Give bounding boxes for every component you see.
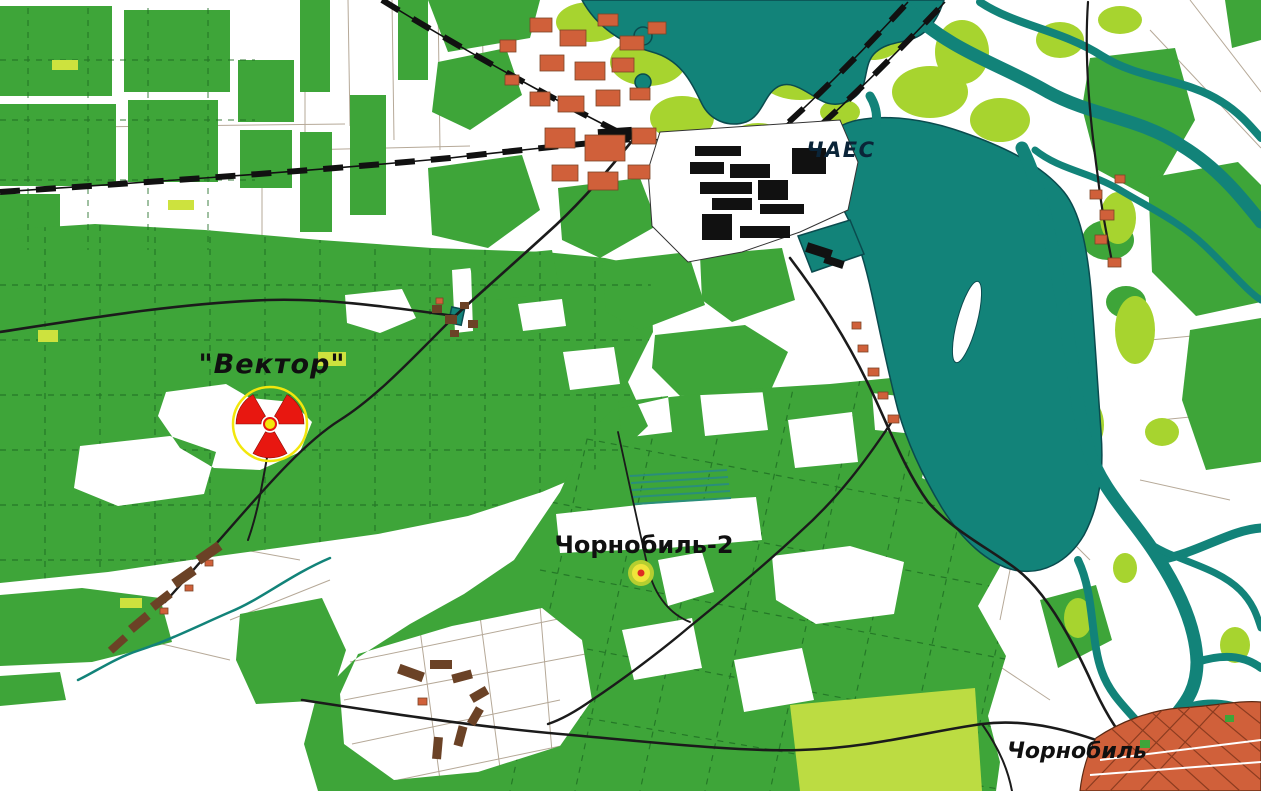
label-chaes: ЧАЕС bbox=[807, 138, 876, 162]
label-vektor: "Вектор" bbox=[199, 349, 346, 380]
map-canvas: "Вектор" ЧАЕС Чорнобиль-2 Чорнобиль bbox=[0, 0, 1261, 791]
map-screenshot: "Вектор" ЧАЕС Чорнобиль-2 Чорнобиль bbox=[0, 0, 1261, 791]
label-chornobyl: Чорнобиль bbox=[1007, 739, 1147, 764]
label-chornobyl2: Чорнобиль-2 bbox=[554, 531, 733, 559]
chornobyl2-marker bbox=[628, 560, 654, 586]
